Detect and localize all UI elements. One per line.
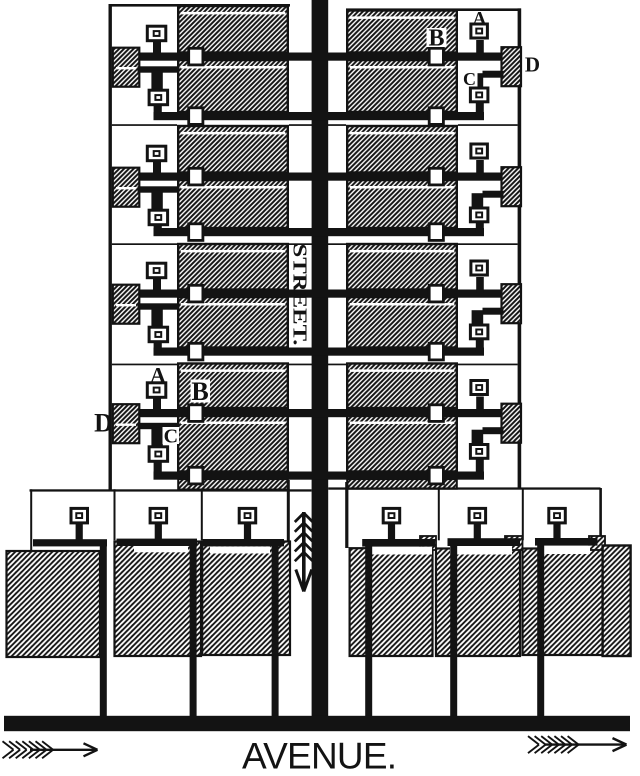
svg-text:STREET.: STREET. [289, 244, 311, 346]
svg-text:A: A [150, 363, 166, 388]
svg-text:C: C [463, 69, 476, 89]
svg-text:B: B [428, 26, 444, 52]
svg-text:C: C [164, 426, 178, 448]
svg-text:D: D [94, 409, 113, 438]
svg-text:B: B [191, 377, 208, 406]
svg-text:A: A [473, 9, 487, 30]
svg-text:D: D [525, 53, 540, 77]
svg-text:AVENUE.: AVENUE. [242, 736, 399, 776]
